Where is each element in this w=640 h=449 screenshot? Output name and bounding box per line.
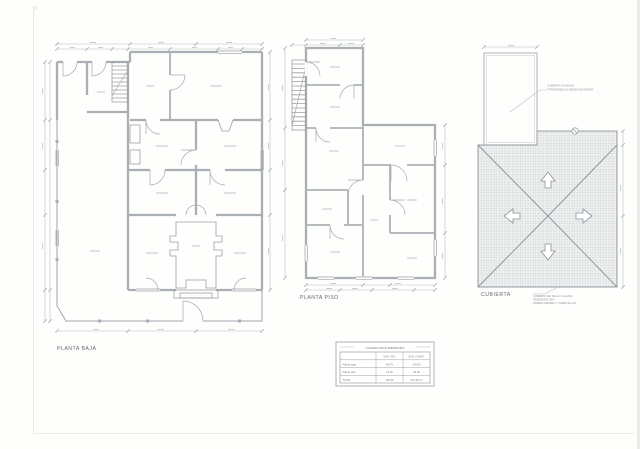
upper-floor-stair xyxy=(292,60,306,130)
entry-porch xyxy=(170,222,222,288)
lot-boundary xyxy=(57,62,262,321)
upper-floor-door-arcs xyxy=(305,62,407,239)
architectural-drawing-canvas: PLANTA BAJA xyxy=(0,0,640,449)
planta-piso-label: PLANTA PISO xyxy=(300,295,339,301)
room-text-specks xyxy=(322,67,417,258)
entry-step-inner xyxy=(180,293,212,298)
ground-floor-stair xyxy=(112,62,128,102)
fixture-rect xyxy=(130,150,140,164)
planta-baja-label: PLANTA BAJA xyxy=(57,346,96,352)
entry-step xyxy=(174,290,218,298)
chimney-detail xyxy=(572,128,578,134)
table-cell: 94.35 xyxy=(413,370,420,374)
drawing-sheet: PLANTA BAJA xyxy=(0,0,640,449)
table-cell: 160.95 xyxy=(385,378,394,382)
roof-note-top-line2: TRANSITABLE ACABADO EN GRAVA xyxy=(547,88,593,92)
table-cell: 197.95 m² xyxy=(410,378,422,382)
table-cell: 84.75 xyxy=(386,362,393,366)
planta-piso-plan: PLANTA PISO xyxy=(283,38,447,301)
upper-floor-windows xyxy=(304,140,436,280)
wall-recess xyxy=(218,120,233,131)
cubierta-plan: CUBIERTA PLANA NO TRANSITABLE ACABADO EN… xyxy=(478,45,625,305)
roof-note-bottom-line2: PENDIENTE 30% xyxy=(533,298,555,302)
roof-note-top-line1: CUBIERTA PLANA NO xyxy=(547,84,574,88)
upper-floor-outline xyxy=(306,48,435,278)
table-col-header-const: SUP. CONST. xyxy=(408,354,425,358)
planta-baja-plan: PLANTA BAJA xyxy=(43,42,272,352)
table-row-label: Planta baja xyxy=(343,362,357,366)
table-title: CUADRO DE SUPERFICIES xyxy=(366,346,405,350)
table-row-label: TOTAL xyxy=(343,378,352,382)
cubierta-label: CUBIERTA xyxy=(481,292,511,298)
table-cell: 103.60 xyxy=(412,362,421,366)
hip-roof-area xyxy=(478,131,617,287)
flat-roof-terrace xyxy=(484,53,537,145)
table-col-header-util: SUP. ÚTIL xyxy=(383,354,396,358)
gate-door-arc xyxy=(183,301,203,321)
surface-table: CUADRO DE SUPERFICIES SUP. ÚTIL SUP. CON… xyxy=(336,342,434,386)
table-row-label: Planta piso xyxy=(343,370,357,374)
ground-floor-walls xyxy=(57,52,262,290)
roof-note-bottom-line1: CUBIERTA DE TEJA A 4 AGUAS xyxy=(533,294,572,298)
upper-floor-partitions xyxy=(306,85,435,278)
roof-note-bottom-line3: SOBRE TABLERO Y TABIQUILLOS xyxy=(533,301,576,305)
table-cell: 76.20 xyxy=(386,370,393,374)
fixture-rect xyxy=(130,125,140,143)
